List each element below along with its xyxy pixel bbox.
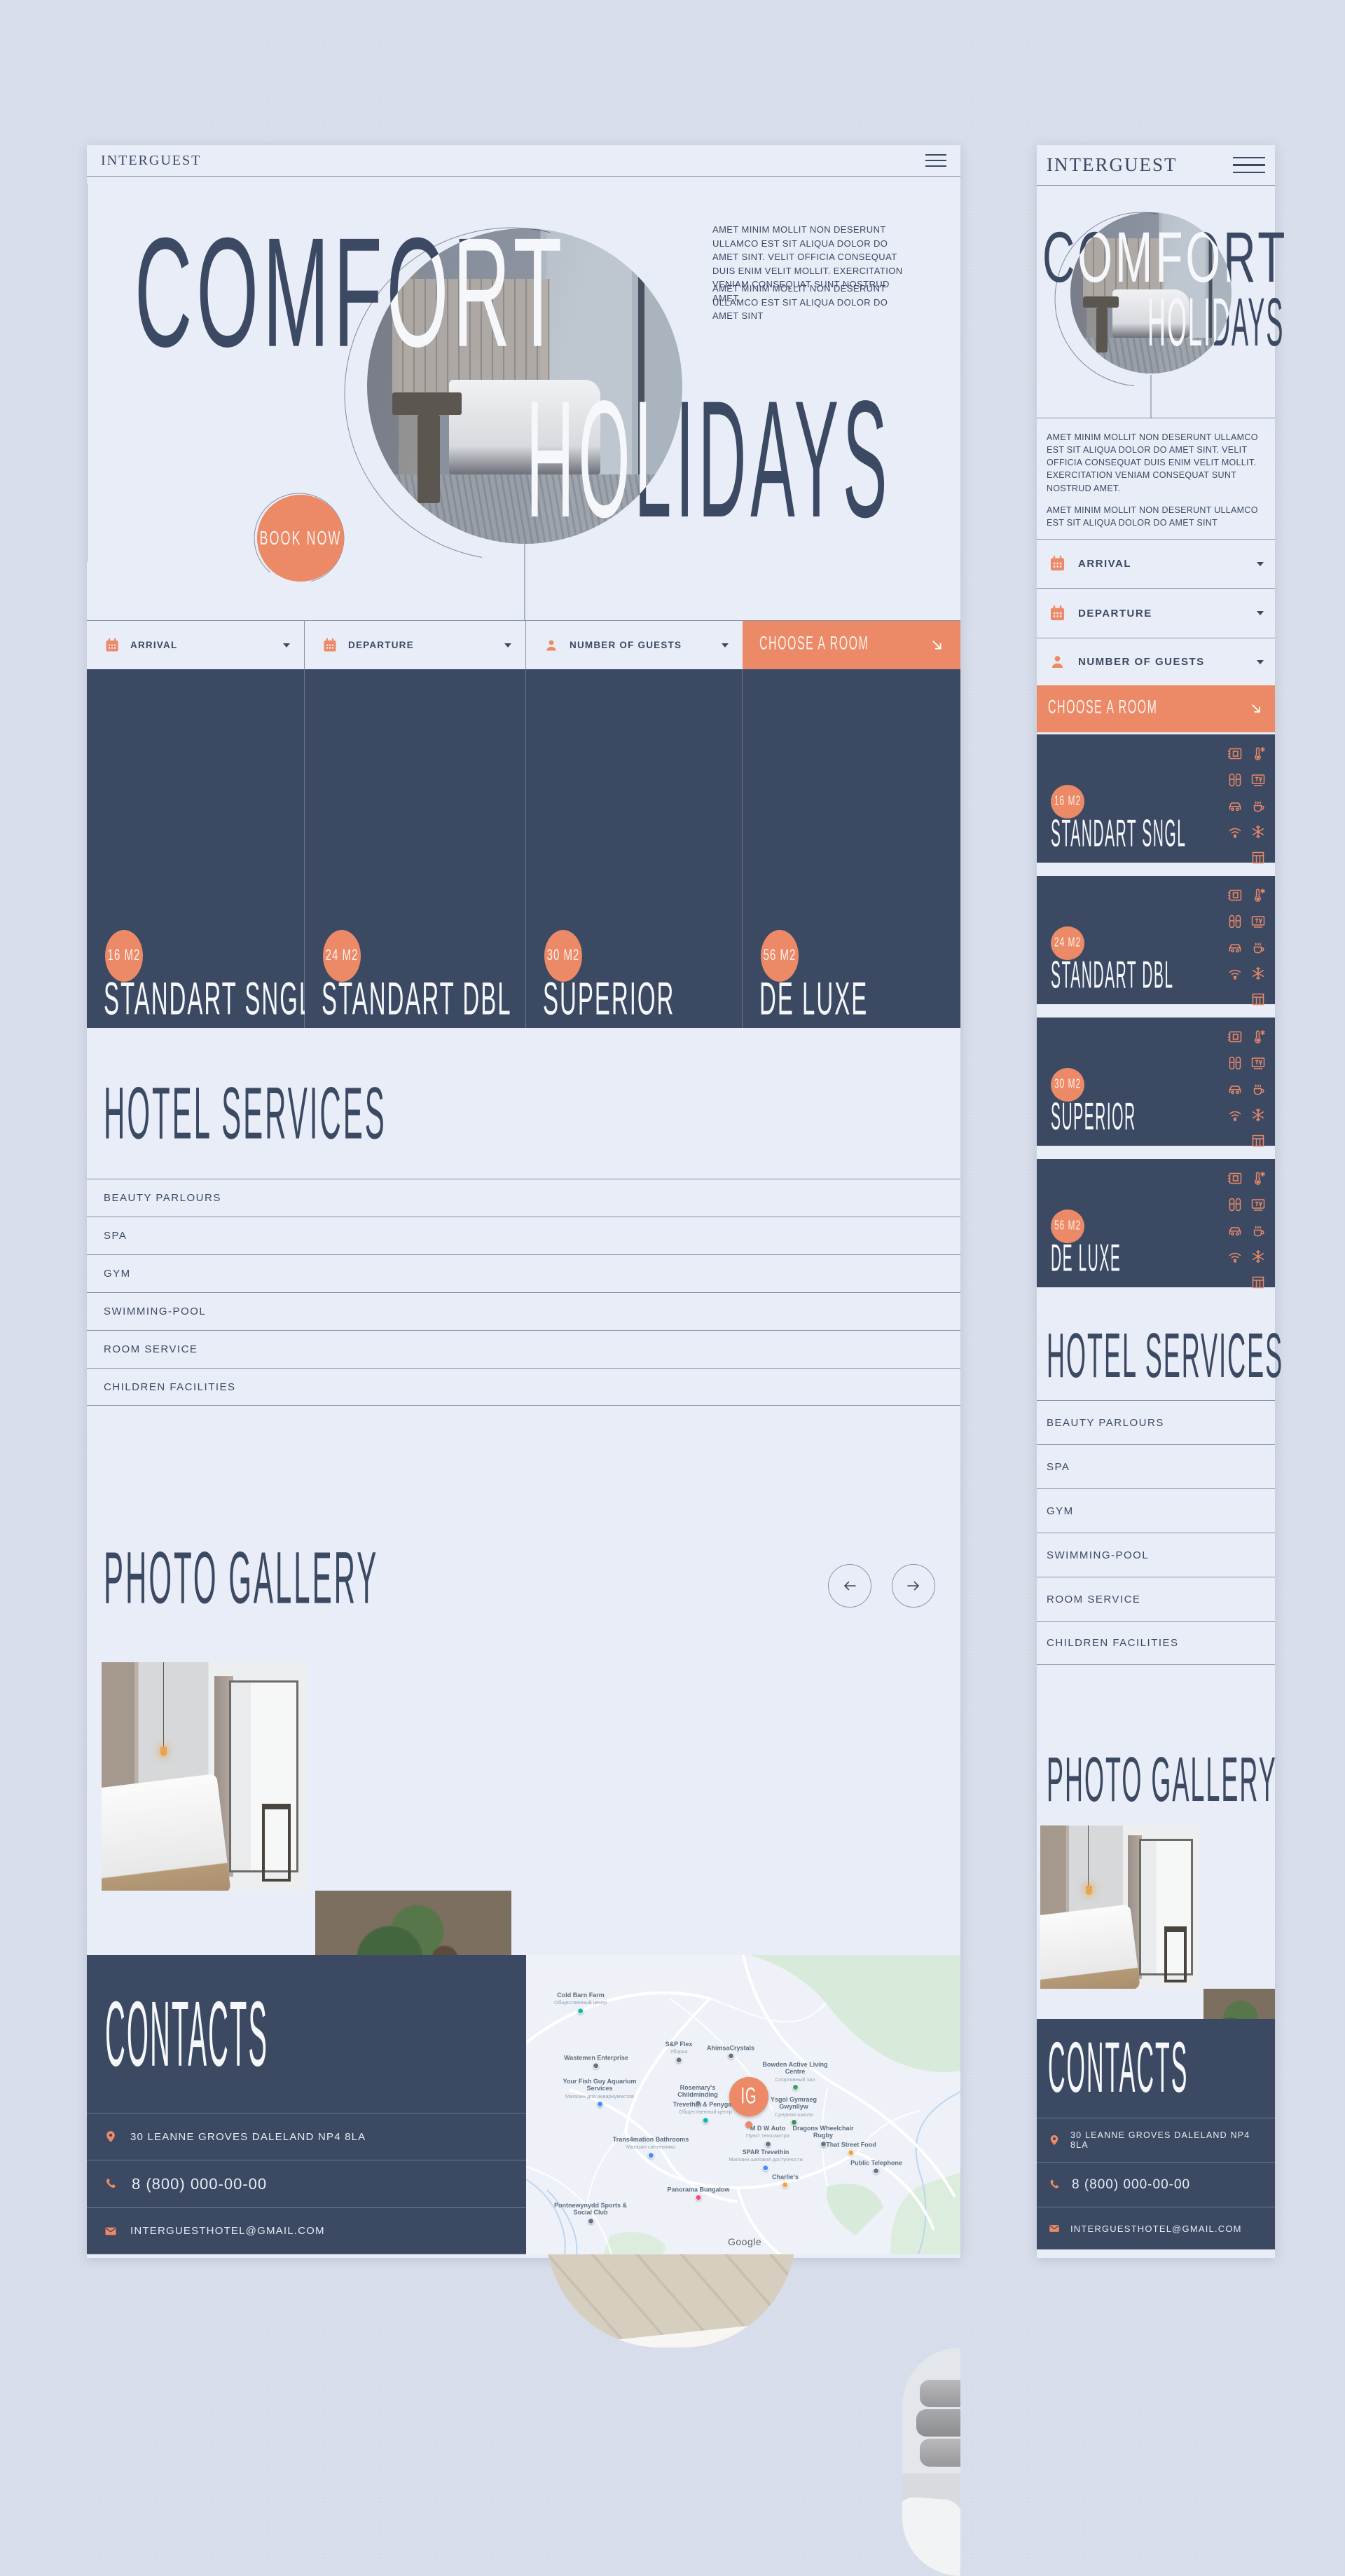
tv-icon xyxy=(1250,1196,1267,1213)
contact-email-row[interactable]: INTERGUESTHOTEL@GMAIL.COM xyxy=(1037,2207,1275,2249)
gallery-photo-towels[interactable] xyxy=(902,2348,960,2576)
map-label: Bowden Active Living CentreСпортивный за… xyxy=(757,2061,834,2090)
photo-art xyxy=(449,380,600,474)
room-name: DE LUXE xyxy=(1051,1264,1121,1277)
climate-control-icon xyxy=(1250,887,1267,904)
map-label: That Street Food xyxy=(826,2141,876,2156)
amenities-grid xyxy=(1227,1029,1267,1149)
departure-field[interactable]: DEPARTURE xyxy=(305,621,526,669)
guests-field[interactable]: NUMBER OF GUESTS xyxy=(1037,638,1275,685)
slippers-icon xyxy=(1227,1196,1243,1213)
gallery-next-button[interactable] xyxy=(892,1564,935,1608)
service-item[interactable]: BEAUTY PARLOURS xyxy=(87,1179,960,1217)
map-label: Your Fish Guy Aquarium ServicesМагазин д… xyxy=(561,2078,638,2107)
phone-icon xyxy=(104,2177,119,2192)
photo-art xyxy=(920,2439,960,2466)
location-pin-icon xyxy=(1048,2134,1061,2146)
air-conditioning-icon xyxy=(1250,1248,1267,1265)
room-card[interactable]: 30 M2 SUPERIOR xyxy=(1037,1018,1275,1146)
photo-art xyxy=(160,1747,167,1756)
arrow-southeast-icon xyxy=(930,638,945,653)
hero-section: COMFORT HOLIDAYS COMFORT HOLIDAYS BOOK N… xyxy=(87,177,960,620)
parking-icon xyxy=(1227,1081,1243,1097)
climate-control-icon xyxy=(1250,1170,1267,1187)
arrow-right-icon xyxy=(905,1577,922,1594)
photo-art xyxy=(262,1804,291,1882)
photo-art xyxy=(920,2380,960,2407)
slippers-icon xyxy=(1227,772,1243,788)
service-item[interactable]: CHILDREN FACILITIES xyxy=(1037,1621,1275,1665)
safe-icon xyxy=(1227,887,1243,904)
google-watermark: Google xyxy=(728,2236,761,2247)
hamburger-menu-icon[interactable] xyxy=(925,152,946,169)
arrival-field[interactable]: ARRIVAL xyxy=(1037,540,1275,588)
photo-art xyxy=(902,2496,960,2576)
chevron-down-icon xyxy=(504,643,511,648)
hamburger-menu-icon[interactable] xyxy=(1233,155,1265,176)
wifi-icon xyxy=(1227,1248,1243,1265)
choose-room-button[interactable]: CHOOSE A ROOM xyxy=(1037,685,1275,732)
contact-phone-row[interactable]: 8 (800) 000-00-00 xyxy=(1037,2162,1275,2207)
slippers-icon xyxy=(1227,913,1243,930)
person-icon xyxy=(543,637,560,654)
photo-art xyxy=(163,1662,164,1749)
contacts-section: CONTACTS 30 LEANNE GROVES DALELAND NP4 8… xyxy=(87,1955,960,2254)
room-card[interactable]: 24 M2 STANDART DBL xyxy=(1037,876,1275,1004)
map-label: AhimsaCrystals xyxy=(707,2044,754,2059)
safe-icon xyxy=(1227,746,1243,762)
room-name: STANDART DBL xyxy=(322,999,512,1020)
blinds-icon xyxy=(1250,849,1267,866)
blinds-icon xyxy=(1250,1274,1267,1291)
person-icon xyxy=(1048,652,1067,671)
air-conditioning-icon xyxy=(1250,965,1267,982)
room-card[interactable]: 24 M2 STANDART DBL xyxy=(305,669,526,1028)
map-label: SPAR TrevethinМагазин шаговой доступност… xyxy=(729,2149,803,2171)
contact-address-row[interactable]: 30 LEANNE GROVES DALELAND NP4 8LA xyxy=(87,2113,526,2160)
photo-art xyxy=(1070,338,1232,374)
amenities-grid xyxy=(1227,1170,1267,1291)
map-marker-dot xyxy=(745,2121,752,2128)
phone-icon xyxy=(1048,2178,1062,2192)
gallery-photo-bedroom[interactable] xyxy=(102,1662,307,1891)
mail-icon xyxy=(104,2224,118,2238)
service-item[interactable]: SPA xyxy=(1037,1444,1275,1488)
hero-left-line xyxy=(87,184,88,562)
calendar-icon xyxy=(104,637,120,654)
wifi-icon xyxy=(1227,965,1243,982)
map[interactable]: Cold Barn FarmОбщественный центр Wasteme… xyxy=(526,1955,960,2254)
header: INTERGUEST xyxy=(1037,145,1275,186)
tv-icon xyxy=(1250,772,1267,788)
chevron-down-icon xyxy=(1257,611,1264,615)
map-label: Wastemen Enterprise xyxy=(564,2054,628,2069)
room-name: SUPERIOR xyxy=(543,999,675,1020)
chevron-down-icon xyxy=(283,643,290,648)
map-hotel-marker[interactable]: IG xyxy=(729,2077,768,2116)
coffee-icon xyxy=(1250,797,1267,814)
brand-logo[interactable]: INTERGUEST xyxy=(1047,154,1177,176)
room-name: STANDART SNGL xyxy=(104,999,313,1020)
gallery-title: PHOTO GALLERY xyxy=(104,1549,378,1574)
room-card[interactable]: 30 M2 SUPERIOR xyxy=(526,669,743,1028)
contacts-section: CONTACTS 30 LEANNE GROVES DALELAND NP4 8… xyxy=(1037,2019,1275,2249)
rooms-section: 16 M2 STANDART SNGL 24 M2 STANDART DBL 3… xyxy=(87,669,960,1028)
tv-icon xyxy=(1250,1055,1267,1071)
service-item[interactable]: CHILDREN FACILITIES xyxy=(87,1368,960,1406)
room-card[interactable]: 16 M2 STANDART SNGL xyxy=(87,669,305,1028)
coffee-icon xyxy=(1250,1222,1267,1239)
service-item[interactable]: ROOM SERVICE xyxy=(87,1330,960,1368)
map-label: Panorama Bungalow xyxy=(667,2186,729,2200)
booking-bar: ARRIVAL DEPARTURE NUMBER OF GUESTS CHOOS… xyxy=(87,620,960,669)
hero-photo xyxy=(1070,212,1232,374)
photo-art xyxy=(392,392,462,415)
gallery-prev-button[interactable] xyxy=(828,1564,871,1608)
chevron-down-icon xyxy=(1257,660,1264,664)
safe-icon xyxy=(1227,1170,1243,1187)
room-name: STANDART SNGL xyxy=(1051,840,1186,853)
climate-control-icon xyxy=(1250,1029,1267,1046)
air-conditioning-icon xyxy=(1250,823,1267,840)
arrow-left-icon xyxy=(841,1577,858,1594)
calendar-icon xyxy=(1048,554,1067,573)
brand-logo[interactable]: INTERGUEST xyxy=(101,153,201,169)
contact-phone-row[interactable]: 8 (800) 000-00-00 xyxy=(87,2160,526,2207)
service-item[interactable]: GYM xyxy=(1037,1488,1275,1533)
room-name: SUPERIOR xyxy=(1051,1123,1136,1136)
parking-icon xyxy=(1227,797,1243,814)
photo-art xyxy=(1112,289,1189,338)
hero-paragraph-1: AMET MINIM MOLLIT NON DESERUNT ULLAMCO E… xyxy=(1047,431,1265,495)
service-item[interactable]: ROOM SERVICE xyxy=(1037,1577,1275,1621)
services-title: HOTEL SERVICES xyxy=(104,1084,387,1109)
room-card[interactable]: 56 M2 DE LUXE xyxy=(743,669,960,1028)
map-label: Public Telephone xyxy=(850,2159,902,2174)
rooms-section: 16 M2 STANDART SNGL 24 M2 STANDART DBL xyxy=(1037,734,1275,1287)
contacts-title: CONTACTS xyxy=(105,1999,268,2022)
contact-email-row[interactable]: INTERGUESTHOTEL@GMAIL.COM xyxy=(87,2207,526,2254)
service-item[interactable]: GYM xyxy=(87,1254,960,1292)
chevron-down-icon xyxy=(1257,562,1264,566)
parking-icon xyxy=(1227,1222,1243,1239)
map-label: M D W AutoПункт техосмотра xyxy=(746,2125,789,2147)
climate-control-icon xyxy=(1250,746,1267,762)
photo-art xyxy=(1040,1904,1140,1989)
departure-field[interactable]: DEPARTURE xyxy=(1037,588,1275,638)
contacts-title: CONTACTS xyxy=(1048,2041,1188,2062)
amenities-grid xyxy=(1227,887,1267,1008)
blinds-icon xyxy=(1250,1132,1267,1149)
desktop-viewport: INTERGUEST COMFORT HOLIDAYS COMFORT HOLI… xyxy=(87,145,960,2258)
hero-paragraph-2: AMET MINIM MOLLIT NON DESERUNT ULLAMCO E… xyxy=(712,282,912,323)
intro-section: AMET MINIM MOLLIT NON DESERUNT ULLAMCO E… xyxy=(1037,418,1275,540)
mobile-viewport: INTERGUEST COMFORT HOLIDAYS COMFORT HOLI… xyxy=(1037,145,1275,2258)
map-label: Trevethin & PenygarnОбщественный центр xyxy=(673,2101,738,2123)
service-item[interactable]: SWIMMING-POOL xyxy=(87,1292,960,1330)
photo-art xyxy=(102,1773,231,1891)
choose-room-button[interactable]: CHOOSE A ROOM xyxy=(743,621,960,669)
book-now-button[interactable]: BOOK NOW xyxy=(257,495,344,582)
map-label: Cold Barn FarmОбщественный центр xyxy=(554,1992,607,2014)
contact-address-row[interactable]: 30 LEANNE GROVES DALELAND NP4 8LA xyxy=(1037,2118,1275,2162)
room-card[interactable]: 16 M2 STANDART SNGL xyxy=(1037,734,1275,863)
services-list: BEAUTY PARLOURS SPA GYM SWIMMING-POOL RO… xyxy=(87,1179,960,1406)
photo-art xyxy=(916,2409,960,2437)
map-label: Charlie's xyxy=(772,2173,799,2188)
room-name: DE LUXE xyxy=(759,999,868,1020)
gallery-title: PHOTO GALLERY xyxy=(1047,1755,1277,1777)
hero-photo xyxy=(367,228,682,544)
photo-art xyxy=(367,474,682,544)
booking-bar: ARRIVAL DEPARTURE NUMBER OF GUESTS CHOOS… xyxy=(1037,540,1275,732)
map-label: Trans4mation BathroomsМагазин сантехники xyxy=(613,2136,689,2158)
gallery-photo-bedroom[interactable] xyxy=(1040,1825,1199,1989)
photo-art xyxy=(1096,308,1108,352)
calendar-icon xyxy=(322,637,338,654)
header: INTERGUEST xyxy=(87,145,960,177)
blinds-icon xyxy=(1250,991,1267,1008)
photo-art xyxy=(1086,1886,1092,1895)
wifi-icon xyxy=(1227,823,1243,840)
calendar-icon xyxy=(1048,604,1067,623)
safe-icon xyxy=(1227,1029,1243,1046)
photo-art xyxy=(1164,1926,1187,1982)
arrow-southeast-icon xyxy=(1249,701,1264,716)
service-item[interactable]: BEAUTY PARLOURS xyxy=(1037,1400,1275,1444)
contacts-block: CONTACTS 30 LEANNE GROVES DALELAND NP4 8… xyxy=(87,1955,526,2254)
guests-field[interactable]: NUMBER OF GUESTS xyxy=(526,621,743,669)
slippers-icon xyxy=(1227,1055,1243,1071)
coffee-icon xyxy=(1250,1081,1267,1097)
map-label: S&P FlexУборка xyxy=(665,2041,693,2063)
location-pin-icon xyxy=(104,2130,118,2144)
wifi-icon xyxy=(1227,1107,1243,1123)
hero-section: COMFORT HOLIDAYS COMFORT HOLIDAYS xyxy=(1037,186,1275,418)
amenities-grid xyxy=(1227,746,1267,866)
map-label: Pontnewynydd Sports & Social Club xyxy=(552,2202,629,2224)
service-item[interactable]: SPA xyxy=(87,1217,960,1254)
tv-icon xyxy=(1250,913,1267,930)
photo-art xyxy=(1088,1825,1089,1888)
photo-art xyxy=(1083,296,1119,308)
chevron-down-icon xyxy=(722,643,729,648)
hero-paragraph-2: AMET MINIM MOLLIT NON DESERUNT ULLAMCO E… xyxy=(1047,504,1265,529)
air-conditioning-icon xyxy=(1250,1107,1267,1123)
coffee-icon xyxy=(1250,939,1267,956)
mail-icon xyxy=(1048,2222,1061,2235)
room-card[interactable]: 56 M2 DE LUXE xyxy=(1037,1159,1275,1287)
services-title: HOTEL SERVICES xyxy=(1047,1331,1283,1353)
arrival-field[interactable]: ARRIVAL xyxy=(87,621,305,669)
photo-art xyxy=(418,415,440,503)
service-item[interactable]: SWIMMING-POOL xyxy=(1037,1533,1275,1577)
room-name: STANDART DBL xyxy=(1051,981,1174,994)
parking-icon xyxy=(1227,939,1243,956)
